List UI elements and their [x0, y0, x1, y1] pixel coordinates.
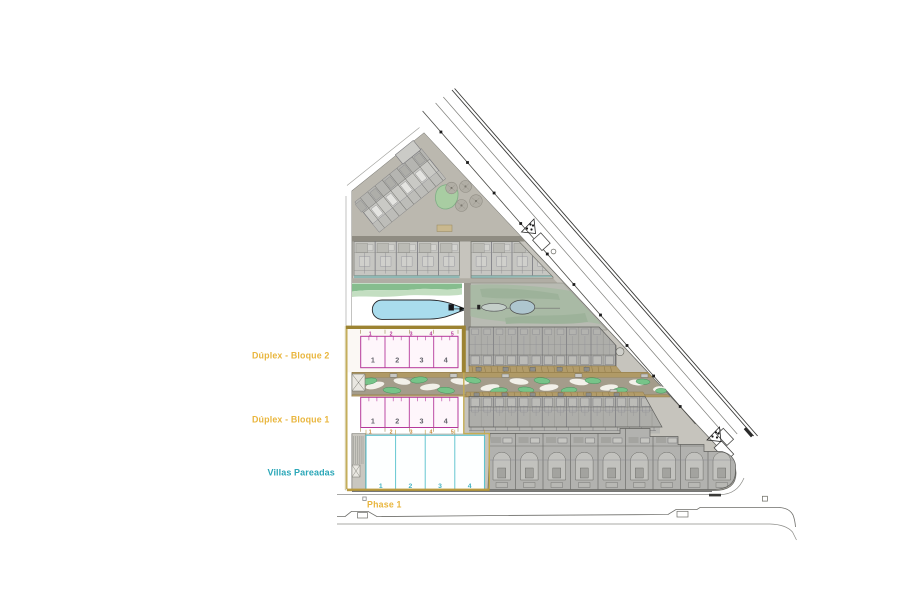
- svg-text:3: 3: [410, 331, 413, 337]
- svg-text:2: 2: [395, 416, 399, 425]
- svg-text:1: 1: [369, 429, 372, 435]
- svg-text:1: 1: [371, 355, 375, 364]
- svg-text:2: 2: [390, 331, 393, 337]
- svg-text:3: 3: [420, 355, 424, 364]
- svg-text:1: 1: [369, 331, 372, 337]
- svg-text:4: 4: [444, 416, 448, 425]
- svg-text:4: 4: [444, 355, 448, 364]
- svg-text:Dúplex - Bloque 1: Dúplex - Bloque 1: [252, 414, 330, 424]
- svg-text:5: 5: [451, 331, 454, 337]
- svg-text:3: 3: [420, 416, 424, 425]
- svg-text:Dúplex - Bloque 2: Dúplex - Bloque 2: [252, 350, 330, 360]
- svg-text:5: 5: [451, 429, 454, 435]
- svg-text:4: 4: [430, 429, 433, 435]
- svg-text:3: 3: [410, 429, 413, 435]
- svg-text:Phase 1: Phase 1: [367, 499, 402, 509]
- svg-text:1: 1: [371, 416, 375, 425]
- svg-text:2: 2: [395, 355, 399, 364]
- svg-text:4: 4: [430, 331, 433, 337]
- svg-text:Villas Pareadas: Villas Pareadas: [268, 467, 335, 477]
- svg-text:2: 2: [390, 429, 393, 435]
